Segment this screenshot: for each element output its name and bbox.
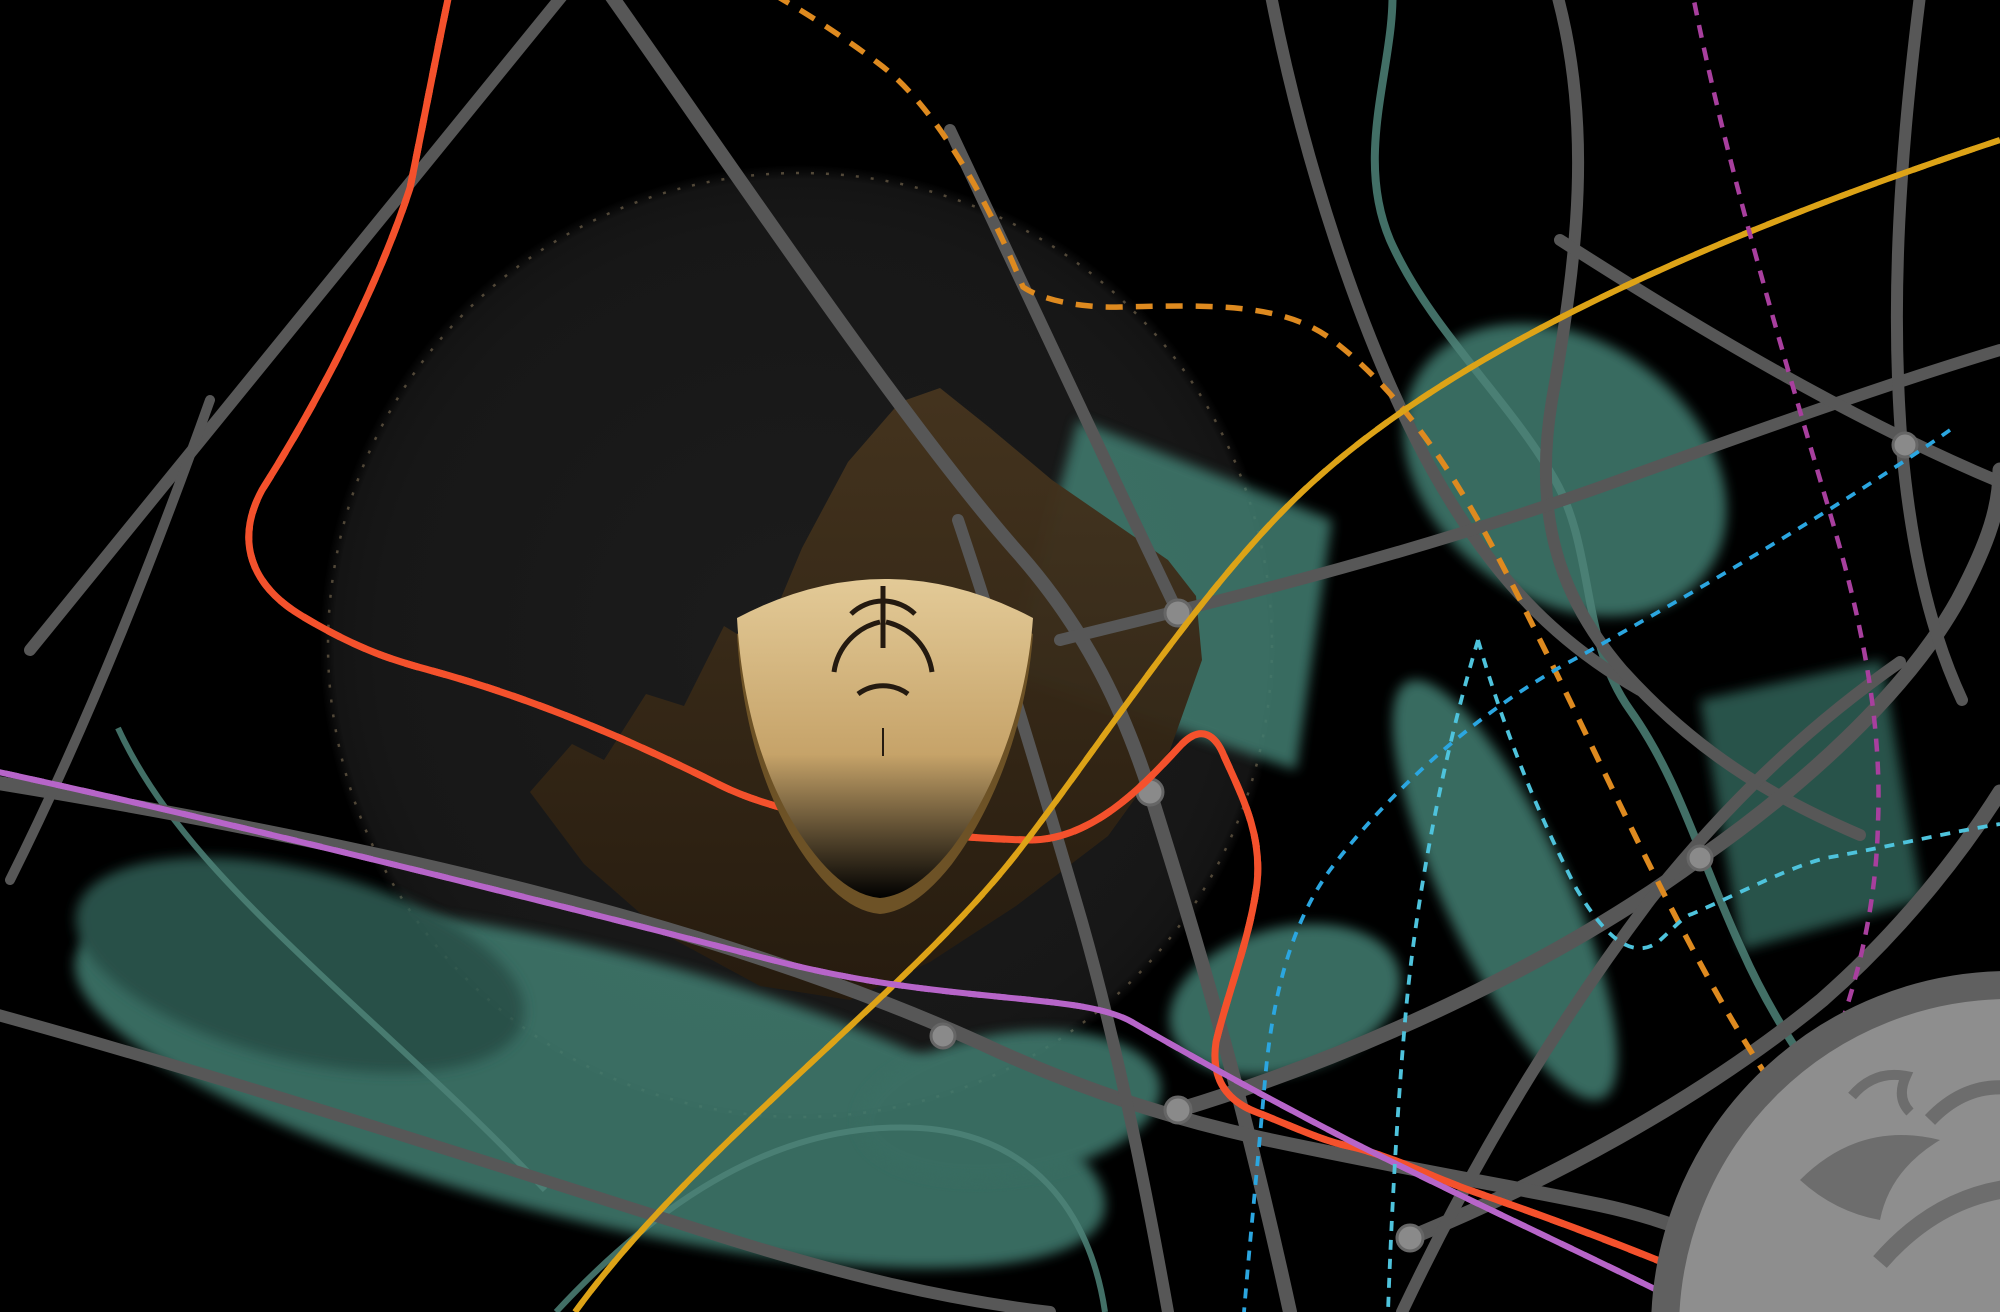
project-name xyxy=(872,728,894,756)
project-name-divider xyxy=(882,728,884,756)
map-canvas[interactable] xyxy=(0,0,2000,1312)
